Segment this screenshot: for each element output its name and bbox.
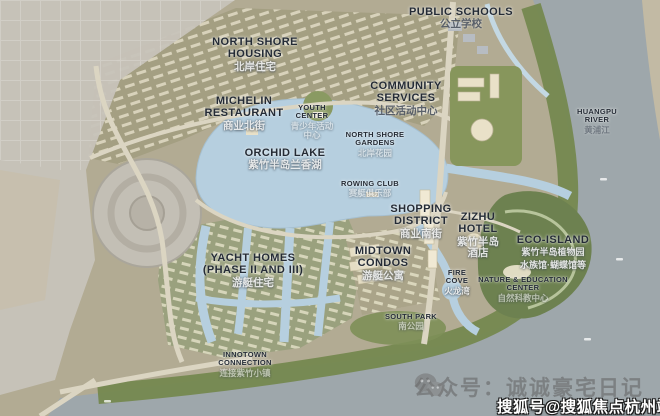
fire-cove-water (442, 280, 462, 300)
masterplan-map: PUBLIC SCHOOLS 公立学校 NORTH SHORE HOUSING … (0, 0, 660, 416)
map-artwork (0, 0, 660, 416)
south-park-area (350, 311, 446, 345)
